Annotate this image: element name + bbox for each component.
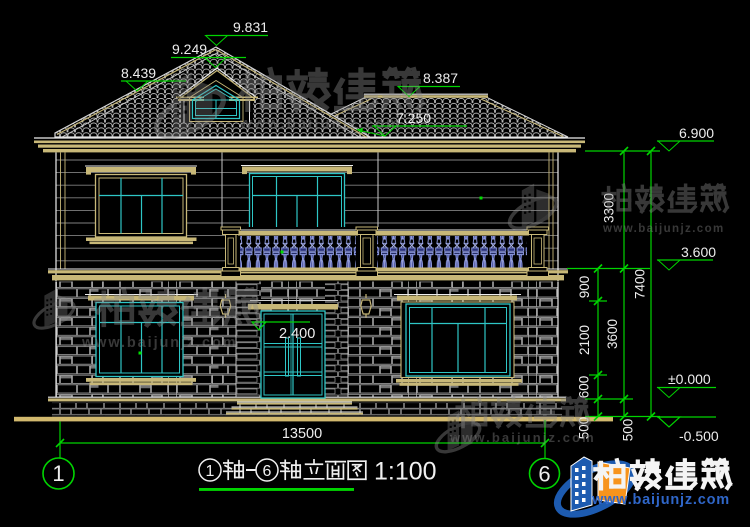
svg-text:2.400: 2.400	[279, 326, 315, 342]
svg-text:www.baijunjz.com: www.baijunjz.com	[239, 115, 401, 132]
svg-text:9.249: 9.249	[172, 41, 207, 57]
svg-text:900: 900	[577, 276, 592, 299]
svg-text:1:100: 1:100	[374, 458, 437, 486]
svg-text:3.600: 3.600	[681, 244, 716, 260]
svg-text:www.baijunjz.com: www.baijunjz.com	[449, 430, 596, 445]
svg-text:-0.500: -0.500	[679, 428, 719, 444]
svg-text:9.831: 9.831	[233, 19, 268, 35]
svg-text:±0.000: ±0.000	[668, 371, 711, 387]
svg-text:8.439: 8.439	[121, 65, 156, 81]
svg-text:2100: 2100	[577, 325, 592, 355]
svg-text:www.baijunjz.com: www.baijunjz.com	[81, 335, 238, 351]
svg-text:1: 1	[52, 461, 64, 486]
svg-text:www.baijunjz.com: www.baijunjz.com	[591, 492, 730, 508]
svg-text:500: 500	[621, 419, 636, 442]
svg-text:6: 6	[538, 462, 550, 487]
svg-text:8.387: 8.387	[423, 70, 458, 86]
svg-text:13500: 13500	[282, 426, 322, 442]
svg-text:www.baijunjz.com: www.baijunjz.com	[602, 223, 725, 235]
svg-text:3600: 3600	[605, 319, 620, 349]
svg-text:6: 6	[263, 463, 272, 480]
svg-text:600: 600	[577, 376, 592, 399]
svg-text:6.900: 6.900	[679, 125, 714, 141]
svg-text:1: 1	[206, 463, 215, 480]
svg-text:7400: 7400	[633, 269, 648, 299]
